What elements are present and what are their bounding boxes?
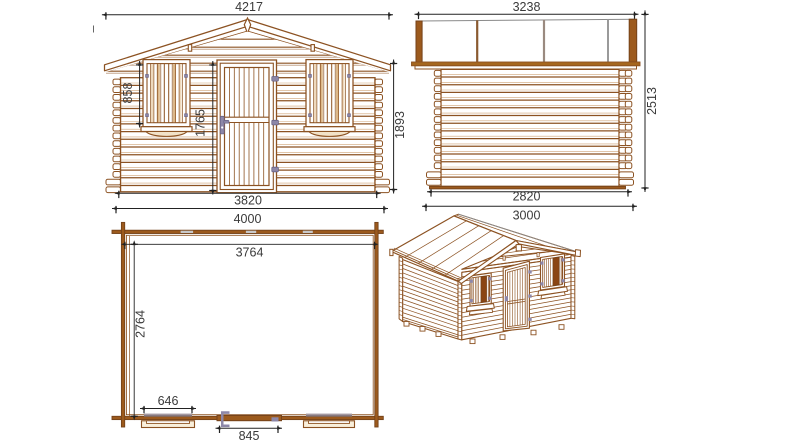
svg-text:646: 646 [158,394,179,408]
svg-text:3820: 3820 [234,194,262,208]
svg-text:845: 845 [239,429,260,443]
svg-text:4000: 4000 [234,212,262,226]
svg-text:2820: 2820 [513,189,541,203]
svg-text:3764: 3764 [236,246,264,260]
svg-text:4217: 4217 [235,0,263,14]
svg-text:3238: 3238 [513,0,541,14]
svg-text:1893: 1893 [393,111,407,139]
svg-text:3000: 3000 [513,208,541,222]
svg-text:858: 858 [121,83,135,104]
svg-text:1765: 1765 [194,109,208,137]
svg-text:2513: 2513 [645,87,659,115]
svg-text:2764: 2764 [134,310,148,338]
